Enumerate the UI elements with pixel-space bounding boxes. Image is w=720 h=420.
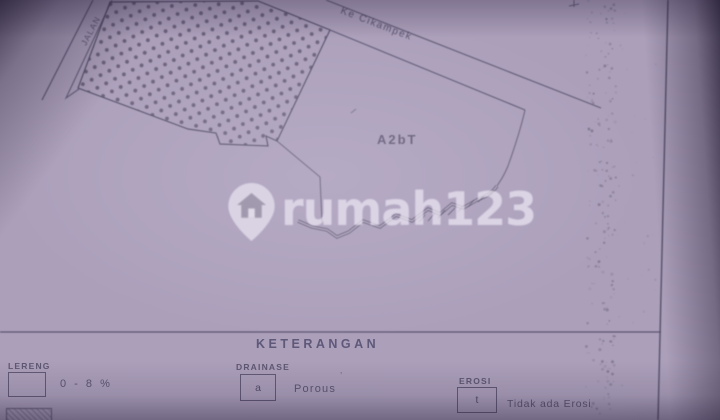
corner-tick-mark — [569, 0, 579, 7]
map-canvas: JALAN Ke Cikampek A2bT — [0, 0, 720, 420]
legend-item-drainase-value: Porous — [294, 383, 336, 395]
legend-item-erosi-label: EROSI — [459, 376, 491, 386]
noise-speckles — [585, 0, 657, 415]
stray-ink-mark: ’ — [340, 371, 342, 382]
river-line — [298, 186, 497, 237]
legend-item-erosi-value: Tidak ada Erosi — [507, 398, 592, 410]
legend-title: KETERANGAN — [256, 337, 379, 351]
stippled-area — [78, 1, 330, 146]
legend-symbol-box-partial — [6, 408, 52, 420]
site-plan-photo: JALAN Ke Cikampek A2bT rumah123 KETERANG… — [0, 0, 720, 420]
map-frame-vertical-line — [658, 0, 668, 420]
legend-item-lereng-value: 0 - 8 % — [60, 378, 112, 390]
parcel-boundary-line — [277, 141, 322, 222]
legend-item-drainase-label: DRAINASE — [236, 362, 290, 372]
legend-item-lereng-label: LERENG — [8, 361, 51, 371]
stray-speck — [351, 109, 356, 113]
top-road-lower-line — [330, 30, 525, 110]
parcel-curve-line — [497, 110, 525, 186]
parcel-area-label: A2bT — [377, 132, 418, 147]
road-label-ke-cikampek: Ke Cikampek — [339, 6, 414, 43]
